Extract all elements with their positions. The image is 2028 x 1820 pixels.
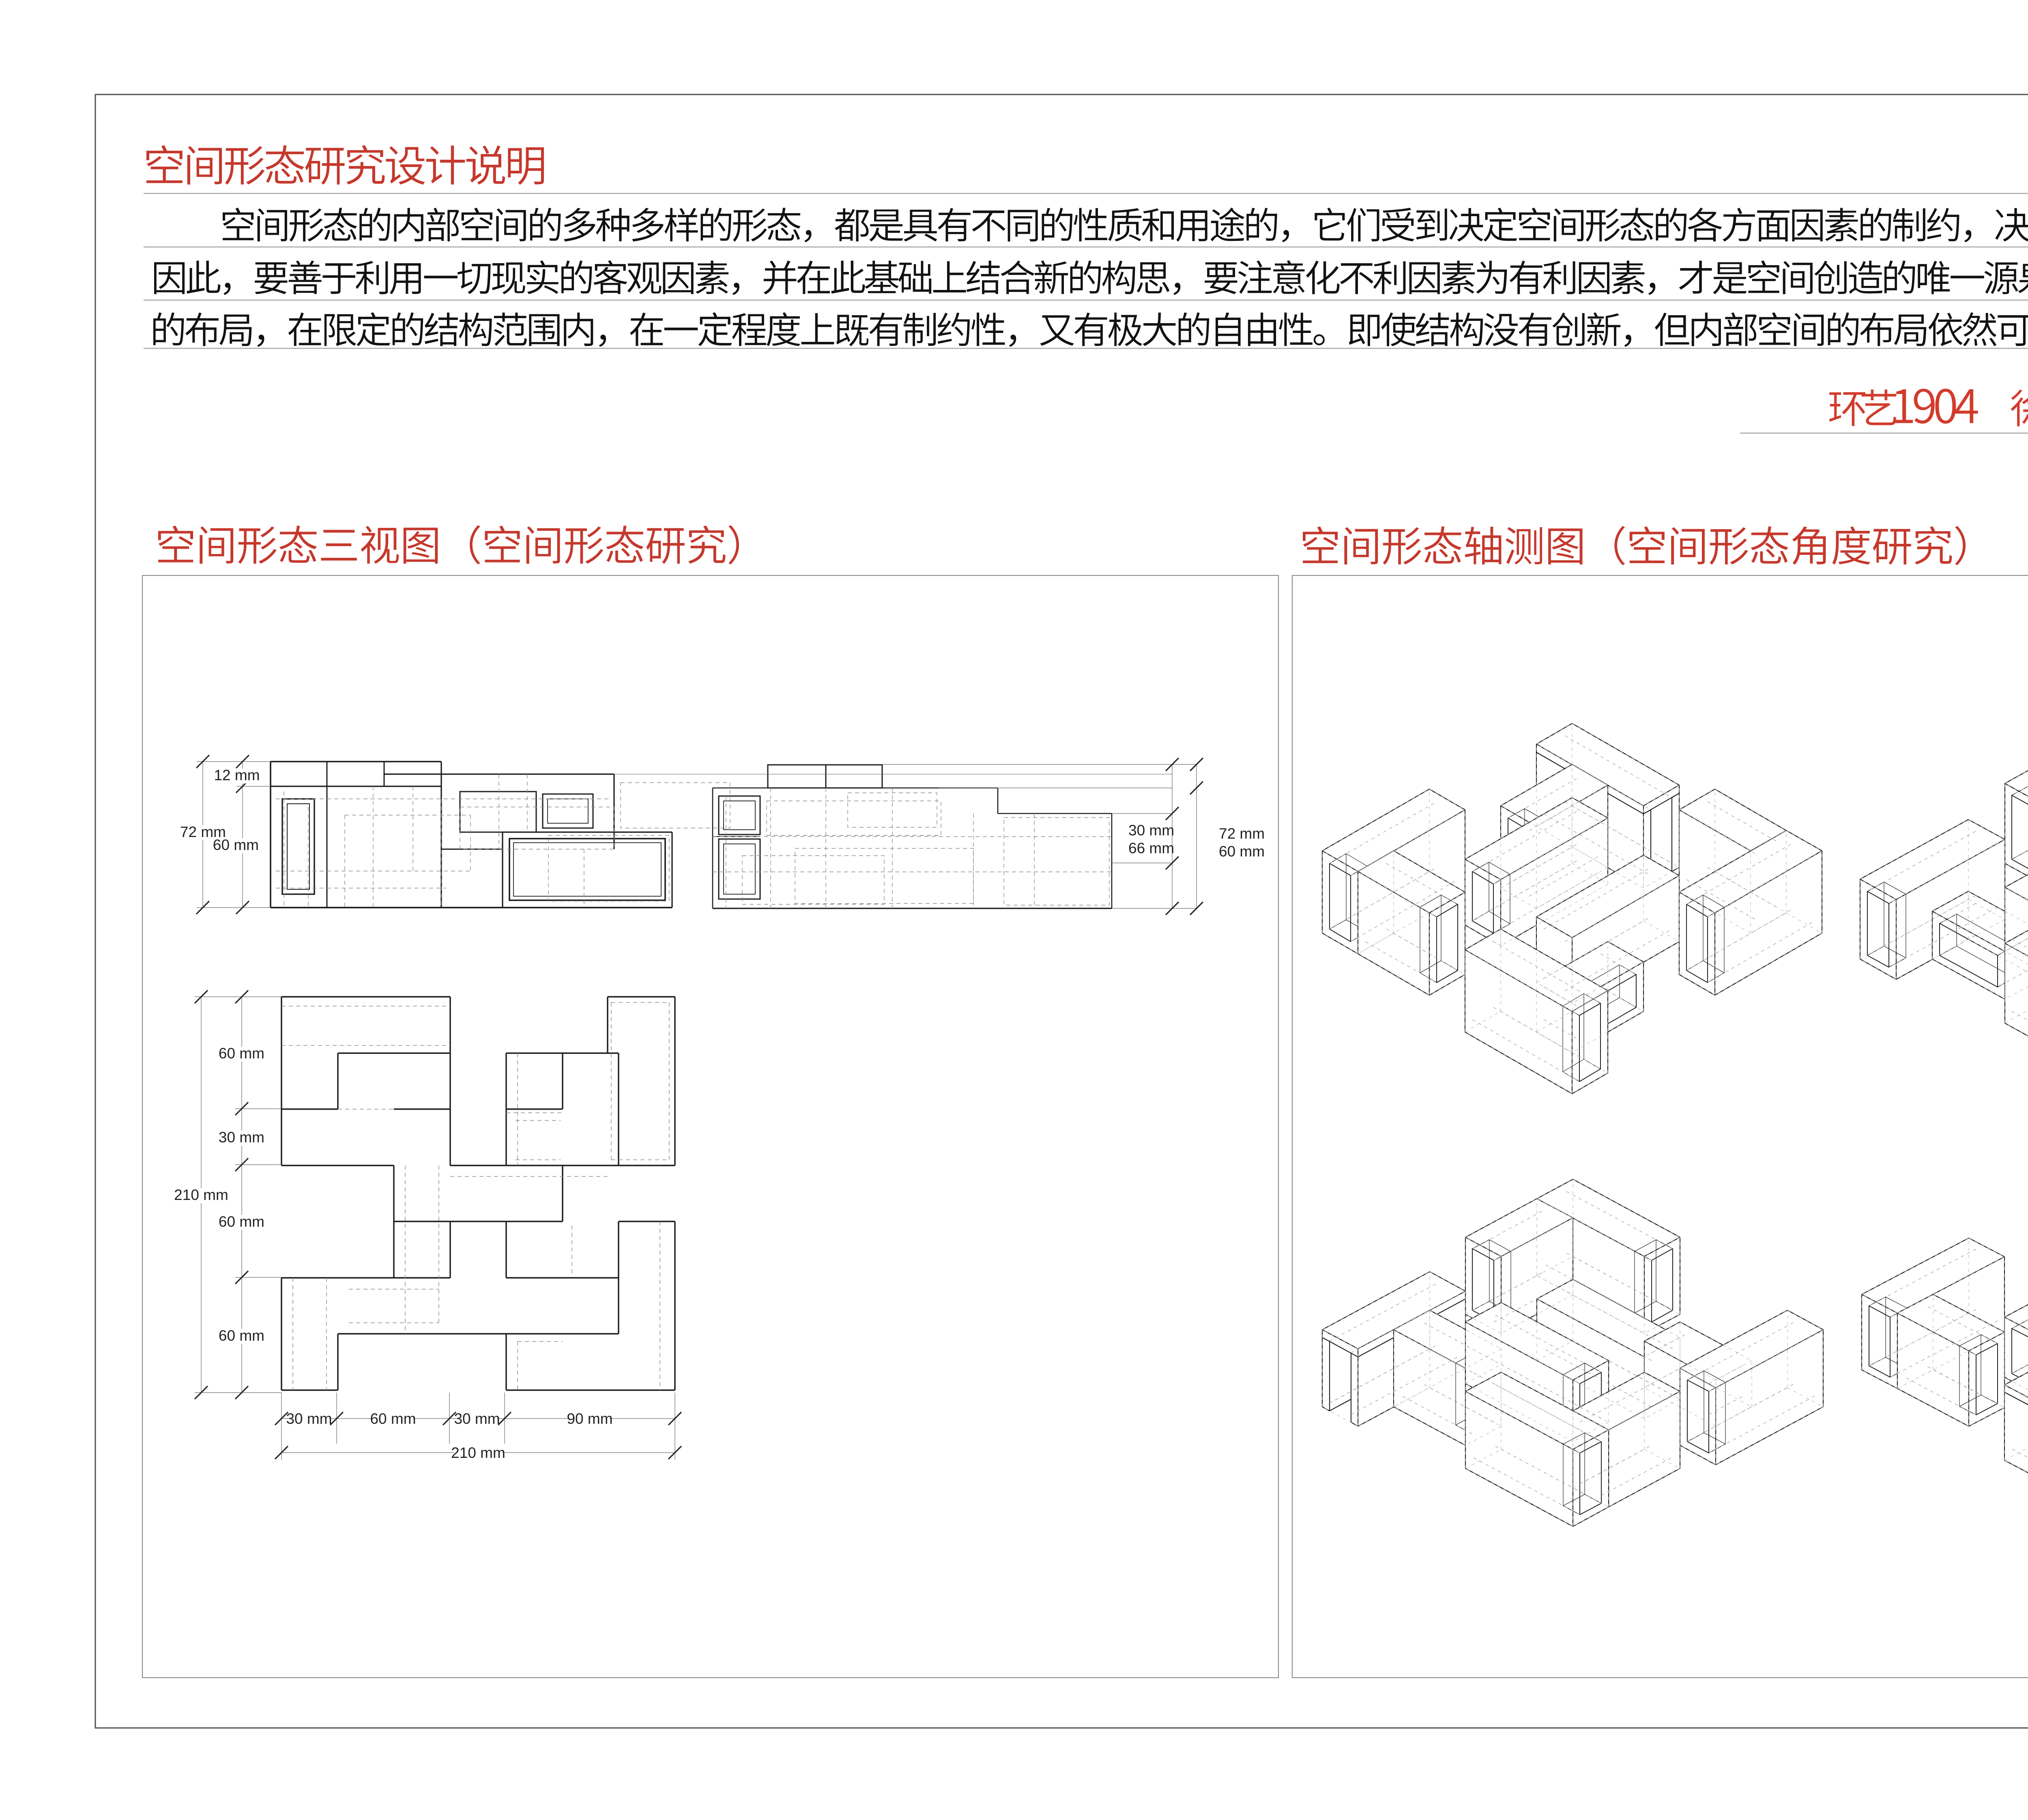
svg-text:60 mm: 60 mm — [370, 1410, 416, 1427]
svg-text:30 mm: 30 mm — [219, 1129, 264, 1146]
svg-text:60 mm: 60 mm — [219, 1213, 264, 1230]
svg-text:210 mm: 210 mm — [174, 1187, 228, 1203]
svg-text:60 mm: 60 mm — [213, 837, 259, 853]
svg-text:30 mm: 30 mm — [454, 1410, 500, 1427]
svg-text:66 mm: 66 mm — [1128, 840, 1174, 856]
svg-text:30 mm: 30 mm — [1128, 822, 1174, 839]
svg-text:90 mm: 90 mm — [567, 1410, 612, 1427]
svg-text:60 mm: 60 mm — [219, 1045, 264, 1062]
svg-text:60 mm: 60 mm — [219, 1327, 264, 1344]
svg-text:12 mm: 12 mm — [214, 767, 260, 783]
svg-text:72 mm: 72 mm — [1219, 825, 1265, 842]
svg-text:60 mm: 60 mm — [1219, 843, 1265, 860]
svg-text:210 mm: 210 mm — [451, 1444, 505, 1461]
svg-text:30 mm: 30 mm — [286, 1410, 332, 1427]
